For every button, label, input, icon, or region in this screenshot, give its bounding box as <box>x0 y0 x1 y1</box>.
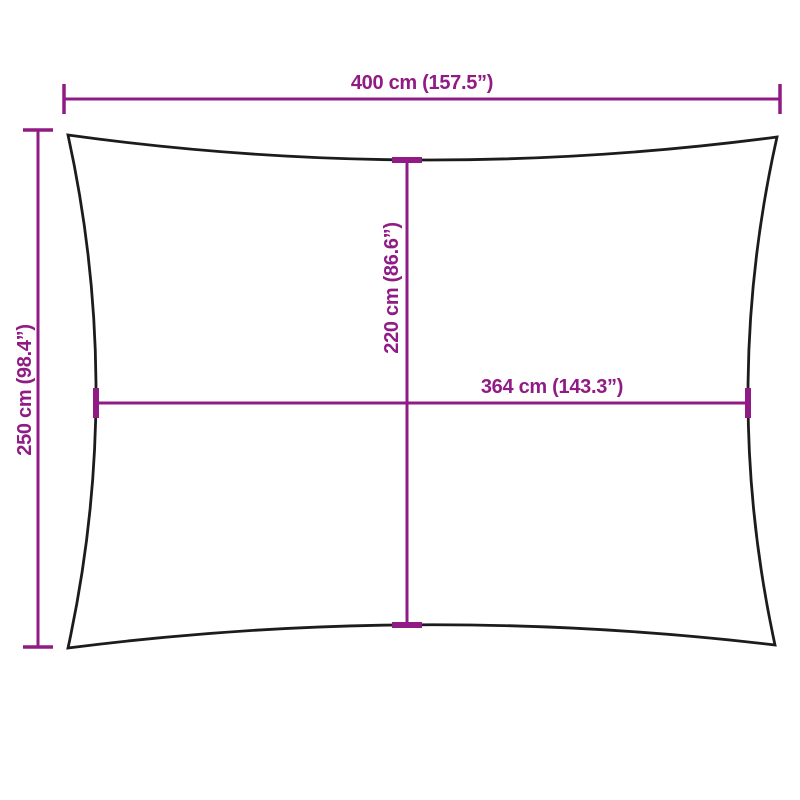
left-height-dimension: 250 cm (98.4”) <box>14 130 53 647</box>
sail-outline <box>68 135 777 648</box>
inner-height-dimension: 220 cm (86.6”) <box>381 160 422 625</box>
inner-height-label: 220 cm (86.6”) <box>381 222 403 353</box>
left-height-label: 250 cm (98.4”) <box>14 324 36 455</box>
inner-width-dimension: 364 cm (143.3”) <box>96 376 748 418</box>
top-width-label: 400 cm (157.5”) <box>351 72 493 94</box>
dimension-diagram: 400 cm (157.5”) 250 cm (98.4”) 220 cm (8… <box>0 0 800 800</box>
top-width-dimension: 400 cm (157.5”) <box>64 72 780 114</box>
diagram-canvas: 400 cm (157.5”) 250 cm (98.4”) 220 cm (8… <box>0 0 800 800</box>
inner-width-label: 364 cm (143.3”) <box>481 376 623 398</box>
